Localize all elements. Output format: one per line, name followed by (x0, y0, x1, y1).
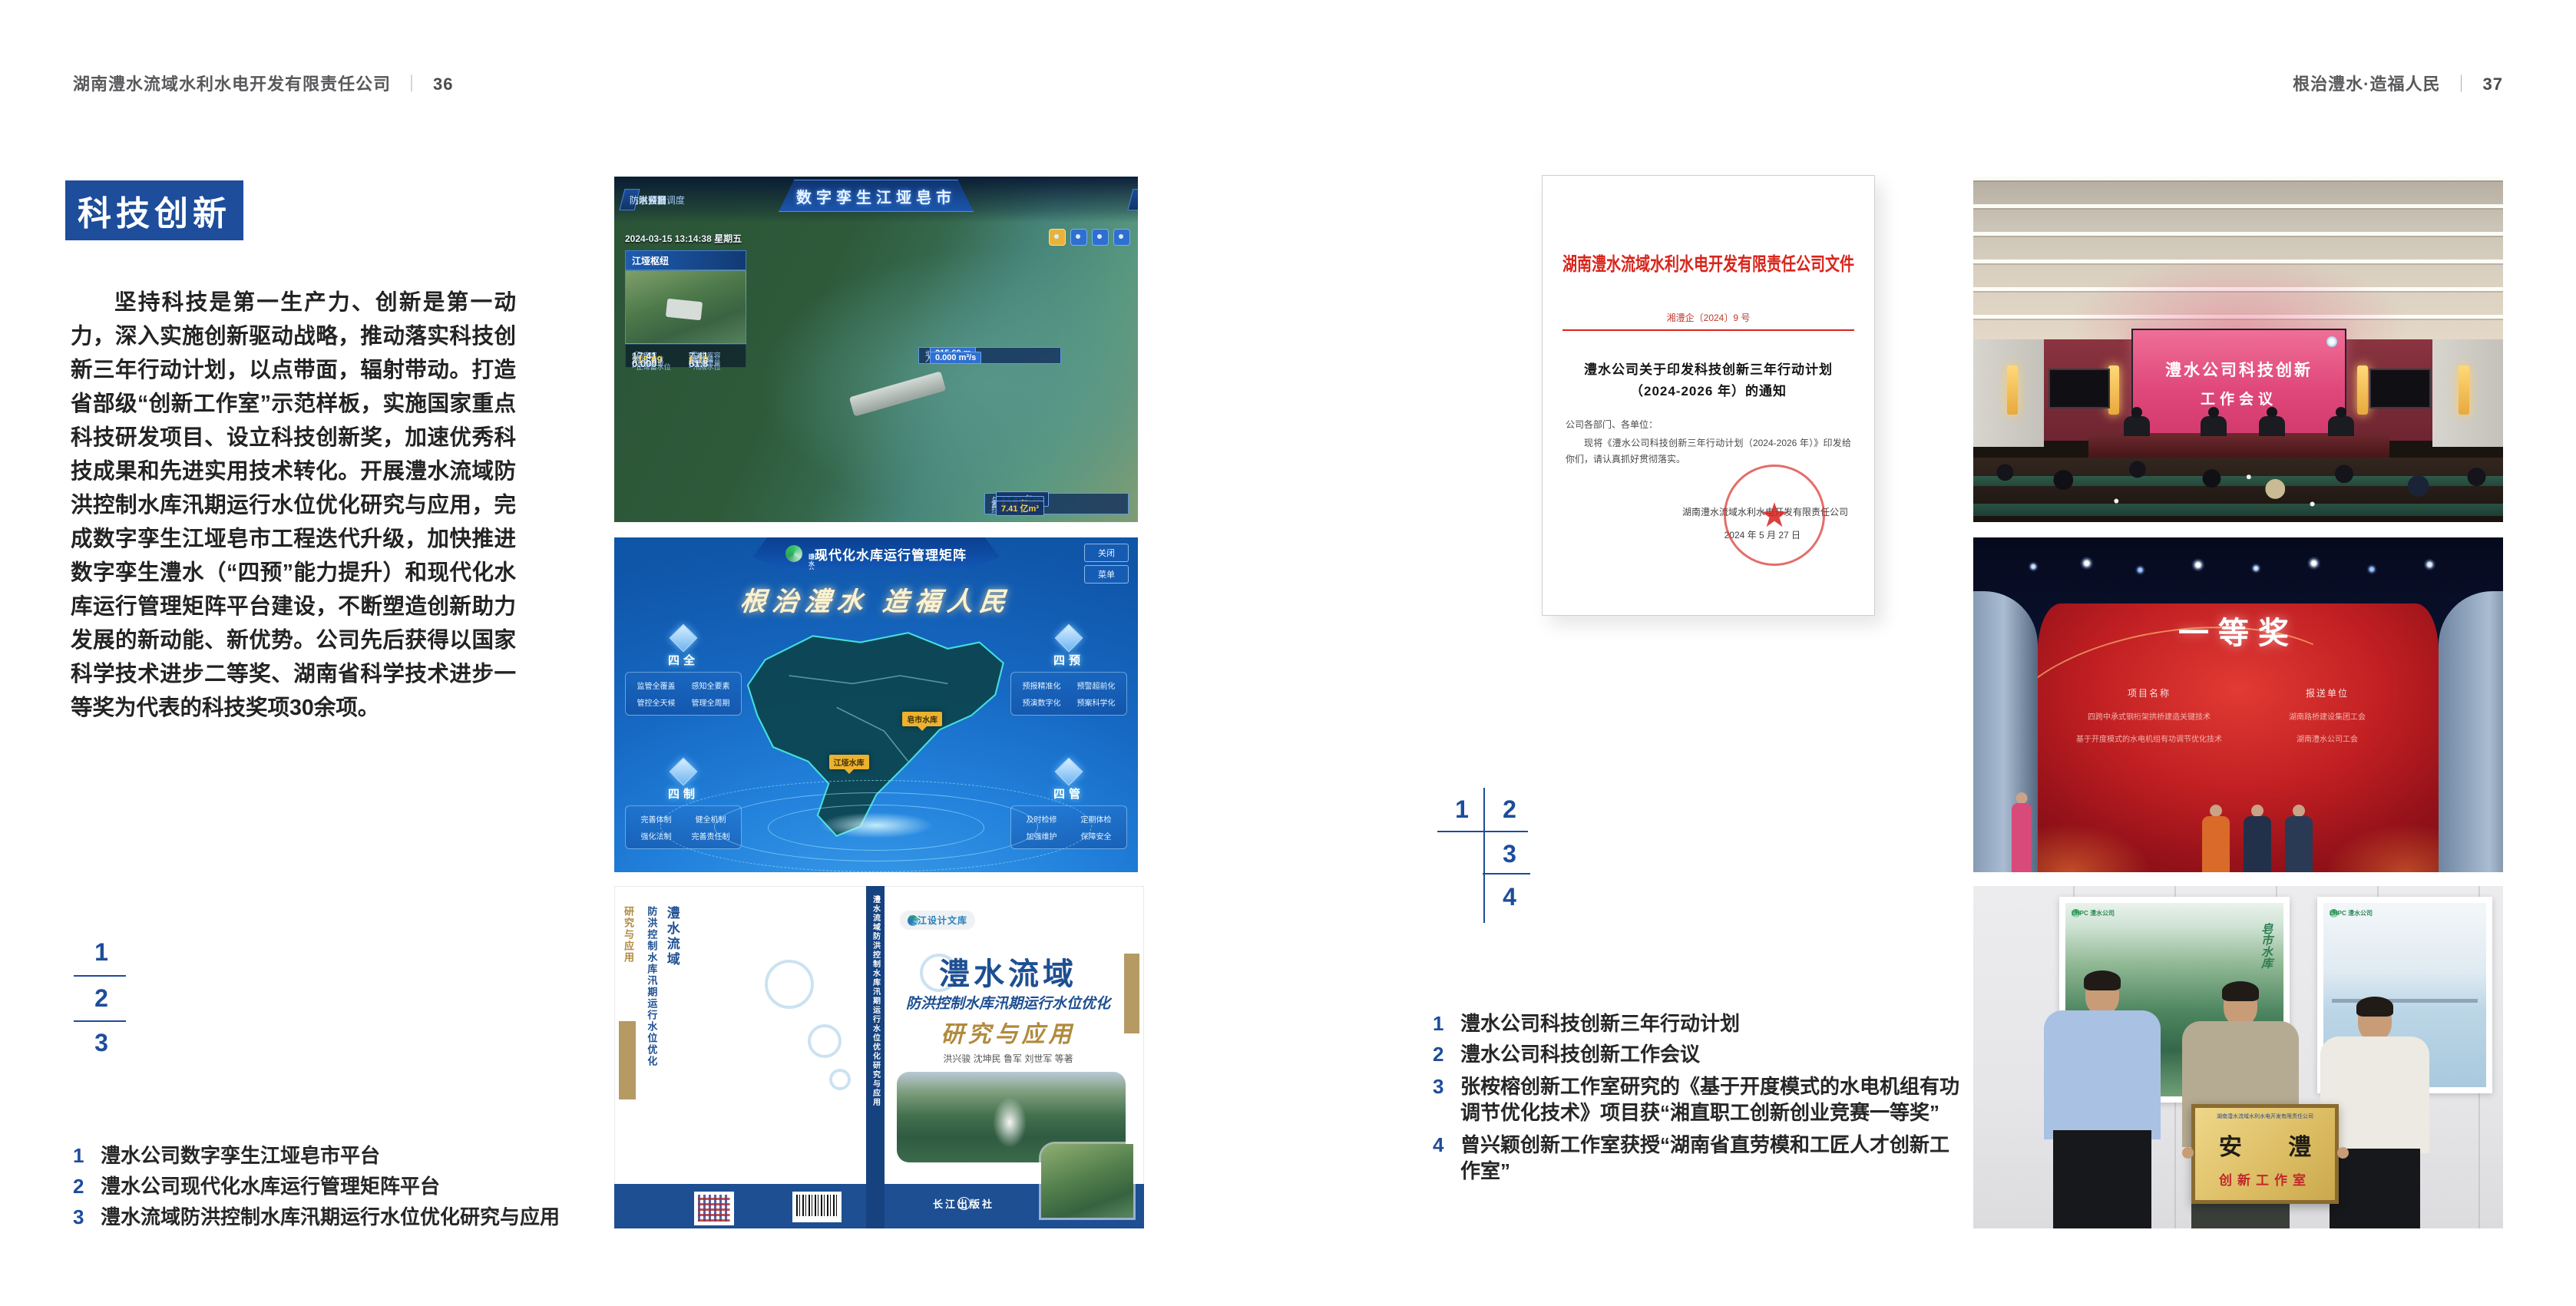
ripple-glow (818, 812, 934, 838)
figure-index-1: 1 (1447, 795, 1477, 824)
cube-icon (670, 758, 698, 786)
reservoir-stats: 总库容17.41亿m³ 拦洪库容7.41亿m³ 坝上水位215.69m 蓄水量8… (625, 344, 746, 368)
figure-index-2: 2 (1494, 795, 1525, 824)
wall-tv (2049, 369, 2110, 408)
alert-icon (1113, 229, 1130, 246)
caption-number: 2 (73, 1173, 101, 1199)
publisher-mark: 长江出版社 (898, 1196, 1029, 1211)
platform-header-plate: LHPC 澧水公司 现代化水库运行管理矩阵 (752, 537, 1000, 570)
motto: 根治澧水·造福人民 (2293, 74, 2440, 94)
screen-title-line2: 工作会议 (2201, 388, 2277, 408)
page-number-left: 36 (433, 74, 453, 94)
figure-index-4: 4 (1494, 883, 1525, 911)
cube-icon (670, 624, 698, 653)
person-trousers (2330, 1149, 2420, 1228)
slogan-calligraphy: 根治澧水 造福人民 (739, 580, 1014, 618)
workshop-plaque: 湖南澧水流域水利水电开发有限责任公司 安 澧 创新工作室 (2191, 1104, 2339, 1204)
capacity-side-panel: 总库容17.41 亿m³ 蓄水量8.10 亿m³ 拦洪库容7.41 亿m³ (984, 493, 1129, 514)
caption-number: 3 (1433, 1073, 1460, 1126)
document-body: 现将《澧水公司科技创新三年行动计划（2024-2026 年）》印发给你们，请认真… (1566, 435, 1851, 468)
index-rule (74, 975, 126, 977)
audience-silhouettes (1973, 447, 2503, 522)
unit-column: 报送单位 湖南路桥建设集团工会 湖南澧水公司工会 (2247, 686, 2408, 744)
index-rule (1437, 831, 1528, 832)
node-item-box: 监管全覆盖 感知全要素 管控全天候 管理全周期 (625, 672, 742, 716)
cover-powerhouse-photo (1041, 1144, 1133, 1218)
book-spine: 澧水流域防洪控制水库汛期运行水位优化研究与应用 (866, 886, 885, 1228)
audience-desks (1973, 447, 2503, 522)
front-title-sub: 防洪控制水库汛期运行水位优化 (885, 992, 1132, 1013)
seal-star-icon: ★ (1759, 496, 1789, 535)
matrix-node-siquan: 四全 监管全覆盖 感知全要素 管控全天候 管理全周期 (625, 628, 742, 716)
menu-button: 菜单 (1084, 565, 1129, 584)
wall-lamp (2459, 365, 2469, 415)
figure-index-2: 2 (86, 984, 117, 1013)
platform-title: 现代化水库运行管理矩阵 (815, 544, 967, 564)
photo-book-cover: 澧水流域 防洪控制水库汛期运行水位优化 研究与应用 澧水流域防洪控制水库汛期运行… (614, 886, 1144, 1228)
caption-row: 3 张桉榕创新工作室研究的《基于开度模式的水电机组有功调节优化技术》项目获“湘直… (1433, 1073, 1966, 1126)
cube-icon (1055, 758, 1083, 786)
dashboard-title: 数字孪生江垭皂市 (779, 180, 974, 212)
front-title-main: 澧水流域 (885, 949, 1132, 994)
unit-row: 湖南澧水公司工会 (2247, 732, 2408, 744)
caption-number: 1 (1433, 1010, 1460, 1037)
index-rule-vertical (1483, 788, 1485, 923)
reservoir-panel: 江垭枢纽 总库容17.41亿m³ 拦洪库容7.41亿m³ 坝上水位215.69m… (625, 250, 746, 368)
caption-number: 2 (1433, 1041, 1460, 1067)
map-marker-zaoshi: 皂市水库 (902, 712, 942, 726)
caption-row: 2 澧水公司现代化水库运行管理矩阵平台 (73, 1173, 440, 1199)
screen-logo-icon (2326, 336, 2337, 347)
caption-number: 3 (73, 1204, 101, 1230)
red-seal: ★ (1724, 465, 1825, 566)
matrix-node-siyu: 四预 预报精准化 预警超前化 预演数字化 预案科学化 (1010, 628, 1127, 716)
right-running-header: 根治澧水·造福人民｜37 (2293, 71, 2503, 95)
page-number-right: 37 (2483, 74, 2503, 94)
barcode (792, 1192, 842, 1222)
person-head (2224, 986, 2257, 1026)
authors-line: 洪兴骏 沈坤民 鲁军 刘世军 等著 (885, 1052, 1132, 1065)
spine-title: 澧水流域防洪控制水库汛期运行水位优化研究与应用 (870, 895, 881, 1228)
speaker-silhouette (2124, 416, 2150, 436)
photo-official-document: 湖南澧水流域水利水电开发有限责任公司文件 湘澧企〔2024〕9 号 澧水公司关于… (1542, 175, 1875, 616)
map-tooltip: 坝上水位215.69 m 入库流量0.000 m³/s (918, 347, 1061, 364)
map-marker-jiangya: 江垭水库 (829, 755, 869, 769)
caption-text: 澧水公司现代化水库运行管理矩阵平台 (101, 1173, 440, 1199)
plaque-sub-text: 创新工作室 (2219, 1169, 2311, 1189)
dam-thumbnail (625, 270, 746, 344)
awardee-silhouette (2202, 805, 2230, 872)
document-red-rule (1562, 329, 1854, 331)
poster-logo: LHPC 澧水公司 (2330, 909, 2373, 918)
caption-number: 1 (73, 1142, 101, 1169)
speaker-silhouette (2328, 416, 2354, 436)
wall-lamp (2357, 365, 2368, 415)
person-head (2358, 1001, 2392, 1041)
index-rule (74, 1020, 126, 1022)
cube-icon (1055, 624, 1083, 653)
caption-number: 4 (1433, 1132, 1460, 1184)
document-red-header: 湖南澧水流域水利水电开发有限责任公司文件 (1556, 250, 1860, 276)
photo-award-ceremony: 一等奖 项目名称 四跨中承式钢桁架拱桥建造关键技术 基于开度模式的水电机组有功调… (1973, 537, 2503, 872)
series-brand: 长江设计文库 (900, 911, 975, 930)
document-title-line2: （2024-2026 年）的通知 (1543, 380, 1874, 399)
reservoir-panel-title: 江垭枢纽 (625, 250, 746, 270)
bubble-ornament (808, 1024, 842, 1058)
back-cover-tan-block (619, 1021, 636, 1099)
dashboard-timestamp: 2024-03-15 13:14:38 星期五 (625, 232, 742, 245)
stage-lights (2015, 550, 2461, 584)
person-trousers (2053, 1130, 2151, 1228)
bubble-ornament (829, 1069, 851, 1090)
document-number: 湘澧企〔2024〕9 号 (1543, 311, 1874, 324)
speaker-silhouette (2201, 416, 2227, 436)
plaque-org-line: 湖南澧水流域水利水电开发有限责任公司 (2217, 1113, 2313, 1120)
layers-icon (1070, 229, 1087, 246)
header-divider: ｜ (403, 74, 421, 94)
meeting-led-screen: 澧水公司科技创新 工作会议 (2133, 330, 2345, 436)
hud-icon-row (1049, 229, 1130, 246)
caption-text: 曾兴颖创新工作室获授“湖南省直劳模和工匠人才创新工作室” (1460, 1132, 1966, 1184)
caption-row: 2 澧水公司科技创新工作会议 (1433, 1041, 1966, 1067)
left-running-header: 湖南澧水流域水利水电开发有限责任公司｜36 (73, 71, 454, 95)
host-silhouette (2009, 792, 2035, 872)
document-title-line1: 澧水公司关于印发科技创新三年行动计划 (1543, 359, 1874, 378)
caption-row: 1 澧水公司科技创新三年行动计划 (1433, 1010, 1966, 1037)
wall-lamp (2007, 365, 2018, 415)
project-column-header: 项目名称 (2068, 686, 2230, 699)
person-head (2085, 975, 2119, 1015)
wall-tv (2369, 369, 2431, 408)
unit-row: 湖南路桥建设集团工会 (2247, 710, 2408, 722)
project-column: 项目名称 四跨中承式钢桁架拱桥建造关键技术 基于开度模式的水电机组有功调节优化技… (2068, 686, 2230, 744)
locate-icon (1092, 229, 1109, 246)
meeting-ceiling (1973, 177, 2503, 339)
caption-text: 澧水公司数字孪生江垭皂市平台 (101, 1142, 380, 1169)
photo-workshop-plaque: LHPC 澧水公司 皂市水库 LHPC 澧水公司 湖南澧水流域水利水电开发有限责… (1973, 886, 2503, 1228)
poster-vertical-caption: 皂市水库 (2258, 923, 2274, 969)
plaque-main-text: 安 澧 (2199, 1128, 2331, 1162)
figure-index-3: 3 (1494, 840, 1525, 868)
caption-text: 澧水公司科技创新工作会议 (1460, 1041, 1700, 1067)
back-cover-title: 澧水流域 防洪控制水库汛期运行水位优化 研究与应用 (637, 906, 684, 1159)
caption-row: 1 澧水公司数字孪生江垭皂市平台 (73, 1142, 380, 1169)
header-divider: ｜ (2453, 74, 2471, 94)
caption-text: 张桉榕创新工作室研究的《基于开度模式的水电机组有功调节优化技术》项目获“湘直职工… (1460, 1073, 1966, 1126)
photo-digital-twin-dashboard: 防洪兴利调度 实时监测 洪水预报 防洪预警 会商预演 预案生成 调度执行 工程导… (614, 177, 1138, 522)
first-prize-title: 一等奖 (1973, 608, 2503, 653)
close-button: 关闭 (1084, 544, 1129, 562)
screen-title-line1: 澧水公司科技创新 (2165, 358, 2313, 381)
company-logo-icon (785, 545, 802, 562)
person-left (2044, 975, 2161, 1228)
book-spread: 湖南澧水流域水利水电开发有限责任公司｜36 根治澧水·造福人民｜37 科技创新 … (0, 0, 2576, 1306)
index-rule (1483, 873, 1530, 875)
user-icon (1049, 229, 1066, 246)
front-cover-tan-block (1124, 954, 1139, 1033)
photo-innovation-meeting: 澧水公司科技创新 工作会议 (1973, 177, 2503, 522)
caption-row: 3 澧水流域防洪控制水库汛期运行水位优化研究与应用 (73, 1204, 560, 1230)
hand (2182, 1147, 2194, 1159)
qr-code (694, 1192, 734, 1225)
photo-matrix-platform: LHPC 澧水公司 现代化水库运行管理矩阵 关闭 菜单 根治澧水 造福人民 四全… (614, 537, 1138, 872)
bubble-ornament (765, 960, 814, 1009)
project-row: 基于开度模式的水电机组有功调节优化技术 (2068, 732, 2230, 744)
figure-index-1: 1 (86, 938, 117, 967)
speaker-silhouette (2259, 416, 2285, 436)
unit-column-header: 报送单位 (2247, 686, 2408, 699)
caption-text: 澧水公司科技创新三年行动计划 (1460, 1010, 1740, 1037)
project-row: 四跨中承式钢桁架拱桥建造关键技术 (2068, 710, 2230, 722)
hand (2337, 1147, 2349, 1159)
node-item-box: 预报精准化 预警超前化 预演数字化 预案科学化 (1010, 672, 1127, 716)
wall-lamp (2108, 365, 2119, 415)
figure-index-3: 3 (86, 1029, 117, 1057)
caption-text: 澧水流域防洪控制水库汛期运行水位优化研究与应用 (101, 1204, 560, 1230)
brand-name: 澧水公司 (809, 554, 815, 582)
document-salutation: 公司各部门、各单位： (1566, 417, 1658, 433)
company-name: 湖南澧水流域水利水电开发有限责任公司 (73, 74, 391, 94)
section-title: 科技创新 (78, 186, 231, 235)
awardee-silhouette (2244, 805, 2271, 872)
poster-logo: LHPC 澧水公司 (2072, 909, 2115, 918)
awardee-silhouette (2285, 805, 2313, 872)
person-shirt (2044, 1010, 2161, 1139)
caption-row: 4 曾兴颖创新工作室获授“湖南省直劳模和工匠人才创新工作室” (1433, 1132, 1966, 1184)
front-title-tail: 研究与应用 (885, 1015, 1132, 1049)
body-paragraph: 坚持科技是第一生产力、创新是第一动力，深入实施创新驱动战略，推动落实科技创新三年… (71, 286, 516, 725)
section-title-box: 科技创新 (65, 180, 243, 240)
